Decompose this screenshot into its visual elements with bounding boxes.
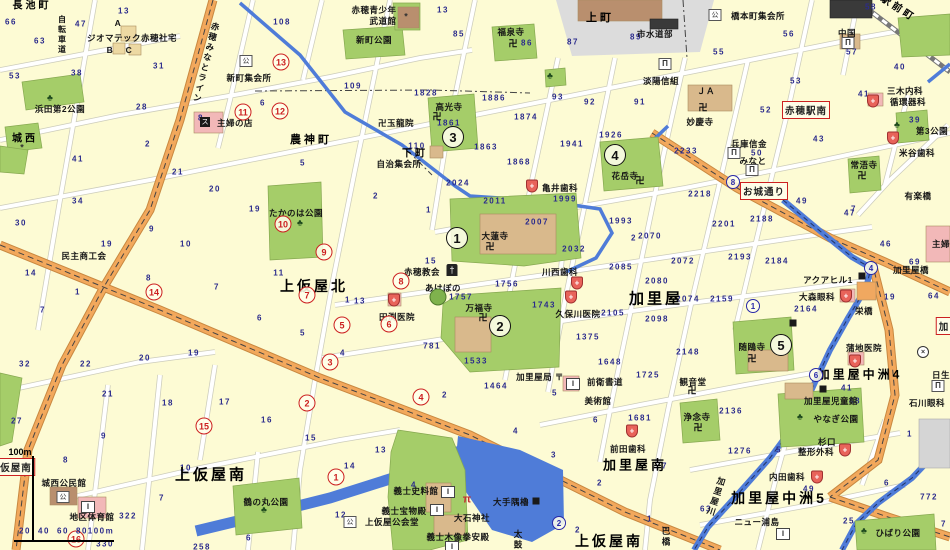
blue-circle-8: 8 — [726, 175, 740, 189]
lot-number: 2164 — [794, 305, 818, 314]
lot-number: 2 — [597, 479, 603, 488]
lot-number: 1926 — [599, 131, 623, 140]
lot-number: 16 — [261, 416, 273, 425]
lot-number: 1648 — [598, 358, 622, 367]
area-label: 上町 — [586, 9, 614, 25]
area-label: 加里屋 — [629, 288, 683, 309]
lot-number: 108 — [273, 18, 291, 27]
area-label: 農神町 — [290, 131, 332, 147]
lot-number: 47 — [75, 20, 87, 29]
red-circle-11: 11 — [235, 104, 252, 121]
museum-icon: ‖ — [441, 486, 455, 498]
lot-number: 7 — [214, 283, 220, 292]
place-label: 前田歯科 — [610, 443, 646, 455]
lot-number: 49 — [796, 197, 808, 206]
lot-number: 2032 — [562, 245, 586, 254]
lot-number: 1 — [647, 515, 653, 524]
place-label: 栄橋 — [855, 305, 873, 317]
lot-number: 2 — [373, 192, 379, 201]
place-label: 妙慶寺 — [686, 116, 713, 128]
museum-icon: ‖ — [430, 504, 444, 516]
store-icon: ス — [200, 117, 210, 127]
temple-icon: 卍 — [478, 314, 487, 323]
lot-number: 41 — [72, 155, 84, 164]
lot-number: 1681 — [628, 414, 652, 423]
lot-number: 6 — [884, 479, 890, 488]
place-label: ジオマテック赤穂社宅 — [87, 32, 177, 44]
lot-number: 7 — [159, 494, 165, 503]
area-label: 下町 — [402, 145, 428, 160]
lot-number: 5 — [776, 446, 782, 455]
place-label: 内田歯科 — [769, 471, 805, 483]
lot-number: 2188 — [750, 215, 774, 224]
lot-number: 772 — [920, 493, 938, 502]
lot-number: 25 — [843, 517, 855, 526]
blue-circle-1: 1 — [746, 299, 760, 313]
red-circle-1: 1 — [328, 469, 345, 486]
lot-number: 2193 — [728, 253, 752, 262]
temple-icon: 卍 — [508, 40, 517, 49]
lot-number: 1828 — [414, 89, 438, 98]
place-label: 義士史料館 — [393, 485, 438, 497]
lot-number: 1276 — [728, 447, 752, 456]
lot-number: 55 — [713, 48, 725, 57]
area-label: 加里屋中洲5 — [731, 488, 827, 508]
temple-icon: 卍 — [698, 104, 707, 113]
lot-number: 2 — [631, 234, 637, 243]
lot-number: 14 — [25, 269, 37, 278]
hospital-icon: + — [867, 95, 879, 108]
lot-number: 85 — [453, 30, 465, 39]
place-label: ひばり公園 — [875, 527, 920, 539]
place-label: 随鴎寺 — [738, 341, 765, 353]
place-label: 久保川医院 — [555, 308, 600, 320]
place-label: 卍玉龍院 — [378, 117, 414, 129]
lot-number: 2080 — [645, 277, 669, 286]
park-icon: ♣ — [297, 219, 303, 228]
lot-number: 13 — [118, 7, 130, 16]
lot-number: 7 — [40, 306, 46, 315]
vertical-label: 太鼓 — [512, 530, 524, 550]
red-circle-5: 5 — [334, 317, 351, 334]
lot-number: 7 — [941, 520, 947, 529]
park-icon: ♣ — [861, 527, 867, 536]
scale-vertical-line — [32, 456, 34, 541]
red-circle-9: 9 — [316, 244, 333, 261]
place-label: 亀井歯科 — [542, 182, 578, 194]
lot-number: 2201 — [712, 220, 736, 229]
hospital-icon: + — [849, 355, 861, 368]
place-label: 前衛書道 — [587, 376, 623, 388]
place-label: 民主商工会 — [61, 250, 106, 262]
park-icon: ♣ — [797, 413, 803, 422]
lot-number: 30 — [15, 219, 27, 228]
lot-number: 34 — [72, 197, 84, 206]
lot-number: 1 — [345, 296, 351, 305]
lot-number: 20 — [139, 354, 151, 363]
bus-stop-label: お城通り — [740, 182, 788, 200]
lot-number: 21 — [172, 168, 184, 177]
lot-number: 1 — [426, 206, 432, 215]
lot-number: 2136 — [719, 407, 743, 416]
lot-number: 66 — [5, 18, 17, 27]
bank-icon: Π — [842, 37, 855, 49]
map-canvas[interactable]: 6663531347313828108682412151385868710993… — [0, 0, 950, 550]
church-icon: † — [447, 264, 458, 276]
museum-icon: ‖ — [566, 378, 580, 390]
public-icon: 公 — [57, 491, 70, 503]
torii-icon: π — [463, 495, 471, 506]
area-label: 駅前町 — [879, 0, 920, 24]
park-icon: ♣ — [47, 94, 53, 103]
place-label: 花岳寺 — [611, 170, 638, 182]
red-circle-3: 3 — [322, 354, 339, 371]
lot-number: 87 — [567, 38, 579, 47]
lot-number: 2 — [442, 391, 448, 400]
museum-icon: ‖ — [776, 528, 790, 540]
kinder-icon — [430, 289, 447, 306]
lot-number: 6 — [257, 314, 263, 323]
lot-number: 43 — [813, 135, 825, 144]
lot-number: 109 — [344, 82, 362, 91]
lot-number: 1533 — [464, 357, 488, 366]
place-label: 自治集会所 — [376, 158, 421, 170]
black-circle-2: 2 — [489, 315, 511, 337]
scale-top-label: 100m — [8, 447, 31, 457]
lot-number: 19 — [249, 205, 261, 214]
lot-number: 92 — [584, 98, 596, 107]
lot-number: 3 — [551, 451, 557, 460]
place-label: 新町公園 — [356, 34, 392, 46]
block-icon — [820, 386, 827, 393]
lot-number: 4 — [340, 349, 346, 358]
lot-number: 4 — [513, 427, 519, 436]
red-circle-12: 12 — [272, 103, 289, 120]
area-label: 加里屋中洲4 — [818, 366, 903, 383]
lot-number: 8 — [146, 274, 152, 283]
blue-circle-6: 6 — [809, 368, 823, 382]
place-label: C — [126, 45, 133, 55]
lot-number: 1743 — [532, 301, 556, 310]
lot-number: 322 — [119, 512, 137, 521]
lot-number: 1993 — [609, 217, 633, 226]
place-label: 武道館 — [369, 15, 396, 27]
place-label: 循環器科 — [890, 96, 926, 108]
red-circle-4: 4 — [413, 389, 430, 406]
place-label: 加里屋局 〒 — [516, 371, 564, 383]
black-circle-3: 3 — [442, 126, 464, 148]
lot-number: 2233 — [674, 147, 698, 156]
lot-number: 53 — [9, 72, 21, 81]
scale-tick-label: 40 — [38, 527, 50, 536]
lot-number: 15 — [305, 434, 317, 443]
bus-stop-label: 加 — [936, 317, 950, 335]
lot-number: 6 — [246, 534, 252, 543]
bus-stop-label: 仮屋南 — [0, 458, 35, 476]
red-circle-10: 10 — [275, 216, 292, 233]
place-label: 常浯寺 — [850, 159, 877, 171]
lot-number: 14 — [344, 462, 356, 471]
block-icon — [533, 498, 540, 505]
lot-number: 39 — [909, 116, 921, 125]
lot-number: 2024 — [446, 179, 470, 188]
temple-icon: 卍 — [485, 243, 494, 252]
lot-number: 2148 — [676, 348, 700, 357]
hospital-icon: + — [526, 180, 538, 193]
lot-number: 40 — [894, 63, 906, 72]
place-label: 主婦 — [932, 238, 950, 250]
museum-icon: ‖ — [445, 541, 459, 550]
place-label: 新町集会所 — [226, 72, 271, 84]
bank-icon: Π — [659, 58, 672, 70]
mark-icon: * — [20, 144, 24, 153]
lot-number: 63 — [34, 37, 46, 46]
lot-number: 1464 — [484, 382, 508, 391]
temple-icon: 卍 — [687, 387, 696, 396]
lot-number: 38 — [71, 69, 83, 78]
lot-number: 2184 — [765, 257, 789, 266]
area-label: 加里屋南 — [603, 455, 667, 474]
blue-circle-2: 2 — [552, 516, 566, 530]
red-circle-8: 8 — [393, 273, 410, 290]
red-circle-6: 6 — [381, 316, 398, 333]
lot-number: 10 — [180, 240, 192, 249]
lot-number: 2011 — [483, 197, 506, 206]
lot-number: 28 — [136, 103, 148, 112]
area-label: 上仮屋南 — [175, 464, 247, 485]
police-icon: × — [917, 346, 929, 358]
public-icon: 公 — [709, 9, 722, 21]
scale-tick-label: 20 — [19, 527, 31, 536]
place-label: 赤穂教会 — [404, 266, 440, 278]
lot-number: 13 — [375, 446, 387, 455]
place-label: 城西公民館 — [41, 477, 86, 489]
lot-number: 1375 — [576, 333, 600, 342]
place-label: 米谷歯科 — [899, 147, 935, 159]
lot-number: 2 — [145, 140, 151, 149]
place-label: 大蓮寺 — [481, 230, 508, 242]
lot-number: 2072 — [671, 257, 695, 266]
lot-number: 2007 — [525, 218, 549, 227]
lot-number: 1874 — [514, 113, 538, 122]
lot-number: 781 — [423, 342, 441, 351]
lot-number: 93 — [552, 93, 564, 102]
red-circle-7: 7 — [299, 287, 316, 304]
public-icon: 公 — [344, 516, 357, 528]
lot-number: 13 — [437, 6, 449, 15]
place-label: 整形外科 — [798, 446, 834, 458]
lot-number: 258 — [193, 543, 211, 550]
place-label: 橋本町集会所 — [731, 10, 785, 22]
place-label: 浜田第2公園 — [35, 103, 85, 115]
place-label: A — [115, 18, 122, 28]
lot-number: 58 — [865, 3, 877, 12]
hospital-icon: + — [626, 425, 638, 438]
lot-number: 2159 — [710, 295, 734, 304]
place-label: 上仮屋公会堂 — [365, 516, 419, 528]
place-label: 福泉寺 — [497, 26, 524, 38]
place-label: ニュー浦島 — [734, 516, 779, 528]
vertical-label: 赤穂みなとライン — [190, 21, 222, 105]
place-label: 第3公園 — [916, 125, 948, 137]
lot-number: 32 — [19, 360, 31, 369]
lot-number: 27 — [11, 417, 23, 426]
lot-number: 47 — [844, 209, 856, 218]
lot-number: 1 — [75, 288, 81, 297]
lot-number: 15 — [425, 257, 437, 266]
area-label: 城西 — [12, 130, 38, 145]
lot-number: 2070 — [638, 232, 662, 241]
place-label: 淡陽信組 — [643, 75, 679, 87]
lot-number: 64 — [928, 292, 940, 301]
lot-number: 20 — [209, 185, 221, 194]
area-label: 上仮屋南 — [575, 531, 643, 550]
scale-tick-label: 80 — [76, 527, 88, 536]
place-label: 大森眼科 — [799, 291, 835, 303]
place-label: 加里屋橋 — [893, 264, 929, 276]
lot-number: 19 — [101, 240, 113, 249]
lot-number: 19 — [188, 349, 200, 358]
place-label: 有楽橋 — [904, 190, 931, 202]
lot-number: 1886 — [482, 94, 506, 103]
temple-icon: 卍 — [747, 355, 756, 364]
public-icon: 公 — [240, 55, 253, 67]
map-labels-layer: 6663531347313828108682412151385868710993… — [0, 0, 950, 550]
lot-number: 22 — [80, 360, 92, 369]
lot-number: 5 — [552, 389, 558, 398]
park-icon: ♣ — [894, 121, 900, 130]
bus-stop-label: 赤穂駅南 — [782, 101, 830, 119]
black-circle-5: 5 — [770, 334, 792, 356]
lot-number: 6 — [260, 99, 266, 108]
place-label: 市水道部 — [637, 28, 673, 40]
scale-tick-label: 100m — [88, 527, 114, 536]
lot-number: 9 — [101, 432, 107, 441]
lot-number: 2218 — [688, 190, 712, 199]
area-label: 長池町 — [13, 0, 52, 12]
museum-icon: ‖ — [81, 501, 95, 513]
red-circle-14: 14 — [146, 284, 163, 301]
hospital-icon: + — [887, 132, 899, 145]
lot-number: 9 — [149, 225, 155, 234]
scale-horizontal-line — [14, 540, 114, 542]
red-circle-2: 2 — [299, 395, 316, 412]
place-label: 石川眼科 — [909, 397, 945, 409]
hospital-icon: + — [811, 471, 823, 484]
place-label: アクアヒル1 — [803, 274, 853, 286]
lot-number: 8 — [63, 456, 69, 465]
hospital-icon: + — [571, 277, 583, 290]
lot-number: 1 — [907, 430, 913, 439]
lot-number: 91 — [634, 98, 646, 107]
lot-number: 56 — [783, 30, 795, 39]
scale-tick-label: 60 — [57, 527, 69, 536]
lot-number: 2098 — [645, 315, 669, 324]
hospital-icon: + — [388, 294, 400, 307]
lot-number: 13 — [354, 297, 366, 306]
place-label: ＪＡ — [697, 85, 715, 97]
red-circle-15: 15 — [196, 418, 213, 435]
place-label: 加里屋児童館 — [804, 395, 858, 407]
park-icon: ♣ — [261, 506, 267, 515]
bank-icon: Π — [746, 164, 759, 176]
mark-icon: * — [404, 13, 408, 22]
place-label: やなぎ公園 — [813, 413, 858, 425]
lot-number: 6 — [593, 416, 599, 425]
lot-number: 52 — [760, 106, 772, 115]
lot-number: 2085 — [609, 263, 633, 272]
lot-number: 86 — [521, 39, 533, 48]
temple-icon: 卍 — [432, 113, 441, 122]
lot-number: 31 — [153, 62, 165, 71]
vertical-label: 巴橋 — [660, 527, 672, 548]
bank-icon: Π — [932, 380, 945, 392]
lot-number: 5 — [300, 329, 306, 338]
lot-number: 18 — [162, 399, 174, 408]
lot-number: 19 — [884, 293, 896, 302]
place-label: 大手隅櫓 — [493, 496, 529, 508]
hospital-icon: + — [840, 290, 852, 303]
black-circle-1: 1 — [446, 227, 468, 249]
lot-number: 1868 — [507, 158, 531, 167]
place-label: 蒲地医院 — [846, 342, 882, 354]
vertical-label: 加里屋川 — [704, 475, 728, 519]
hospital-icon: + — [839, 444, 851, 457]
hospital-icon: + — [565, 291, 577, 304]
vertical-label: 自転車道 — [57, 15, 68, 55]
bank-icon: Π — [728, 147, 741, 159]
black-circle-4: 4 — [604, 144, 626, 166]
lot-number: 1941 — [560, 140, 584, 149]
lot-number: 1756 — [495, 280, 519, 289]
lot-number: 1863 — [474, 143, 498, 152]
red-circle-13: 13 — [273, 54, 290, 71]
temple-icon: 卍 — [635, 177, 644, 186]
lot-number: 1999 — [553, 195, 577, 204]
place-label: 大石神社 — [454, 512, 490, 524]
place-label: B — [107, 45, 114, 55]
lot-number: 1725 — [636, 371, 660, 380]
lot-number: 21 — [102, 390, 114, 399]
lot-number: 41 — [841, 384, 853, 393]
place-label: 美術館 — [584, 395, 611, 407]
temple-icon: 卍 — [857, 172, 866, 181]
block-icon — [859, 273, 866, 280]
place-label: 浄念寺 — [683, 411, 710, 423]
park-icon: ♣ — [547, 72, 553, 81]
lot-number: 5 — [300, 159, 306, 168]
block-icon — [790, 320, 797, 327]
lot-number: 2105 — [601, 309, 625, 318]
lot-number: 17 — [219, 398, 231, 407]
lot-number: 53 — [790, 77, 802, 86]
lot-number: 46 — [880, 240, 892, 249]
blue-circle-4: 4 — [864, 261, 878, 275]
temple-icon: 卍 — [693, 424, 702, 433]
